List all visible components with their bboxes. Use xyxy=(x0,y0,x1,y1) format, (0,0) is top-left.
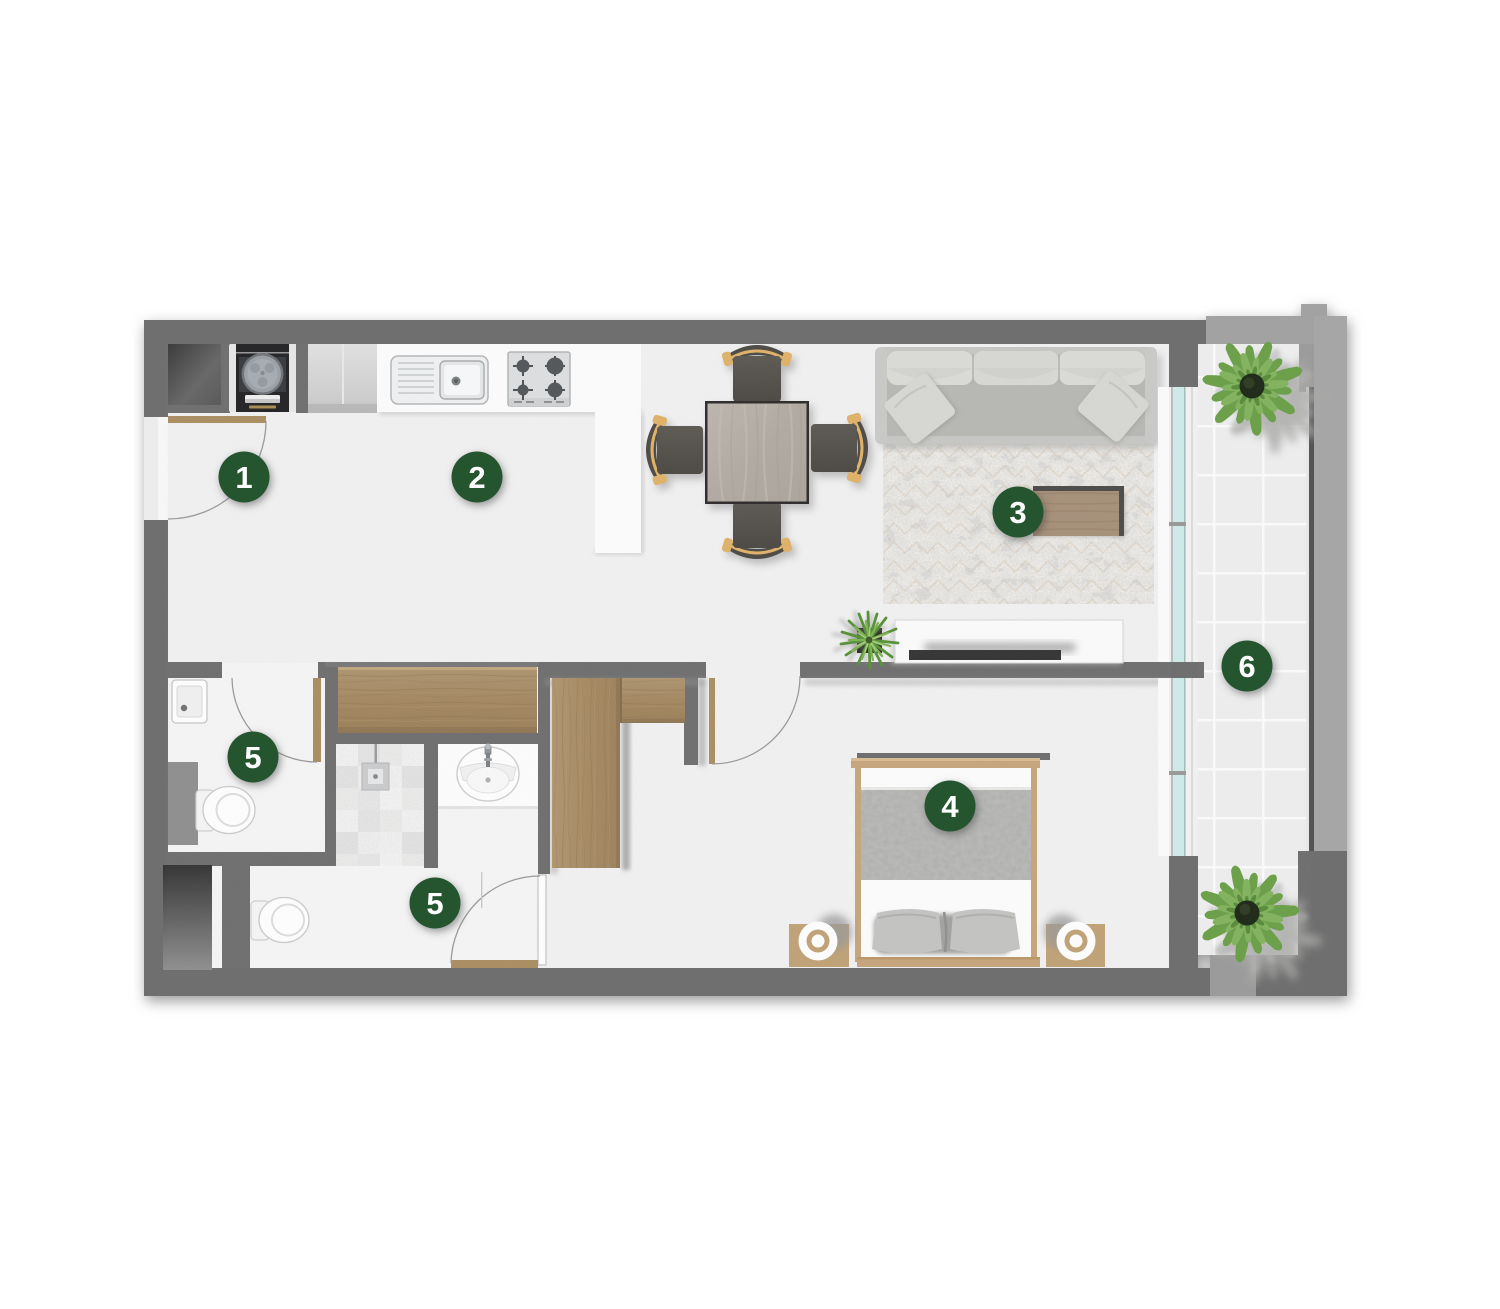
svg-text:4: 4 xyxy=(941,789,959,824)
svg-text:1: 1 xyxy=(235,460,252,495)
svg-text:5: 5 xyxy=(426,886,443,921)
svg-text:5: 5 xyxy=(244,740,261,775)
svg-text:6: 6 xyxy=(1238,649,1255,684)
svg-text:3: 3 xyxy=(1009,495,1026,530)
svg-text:2: 2 xyxy=(468,460,485,495)
